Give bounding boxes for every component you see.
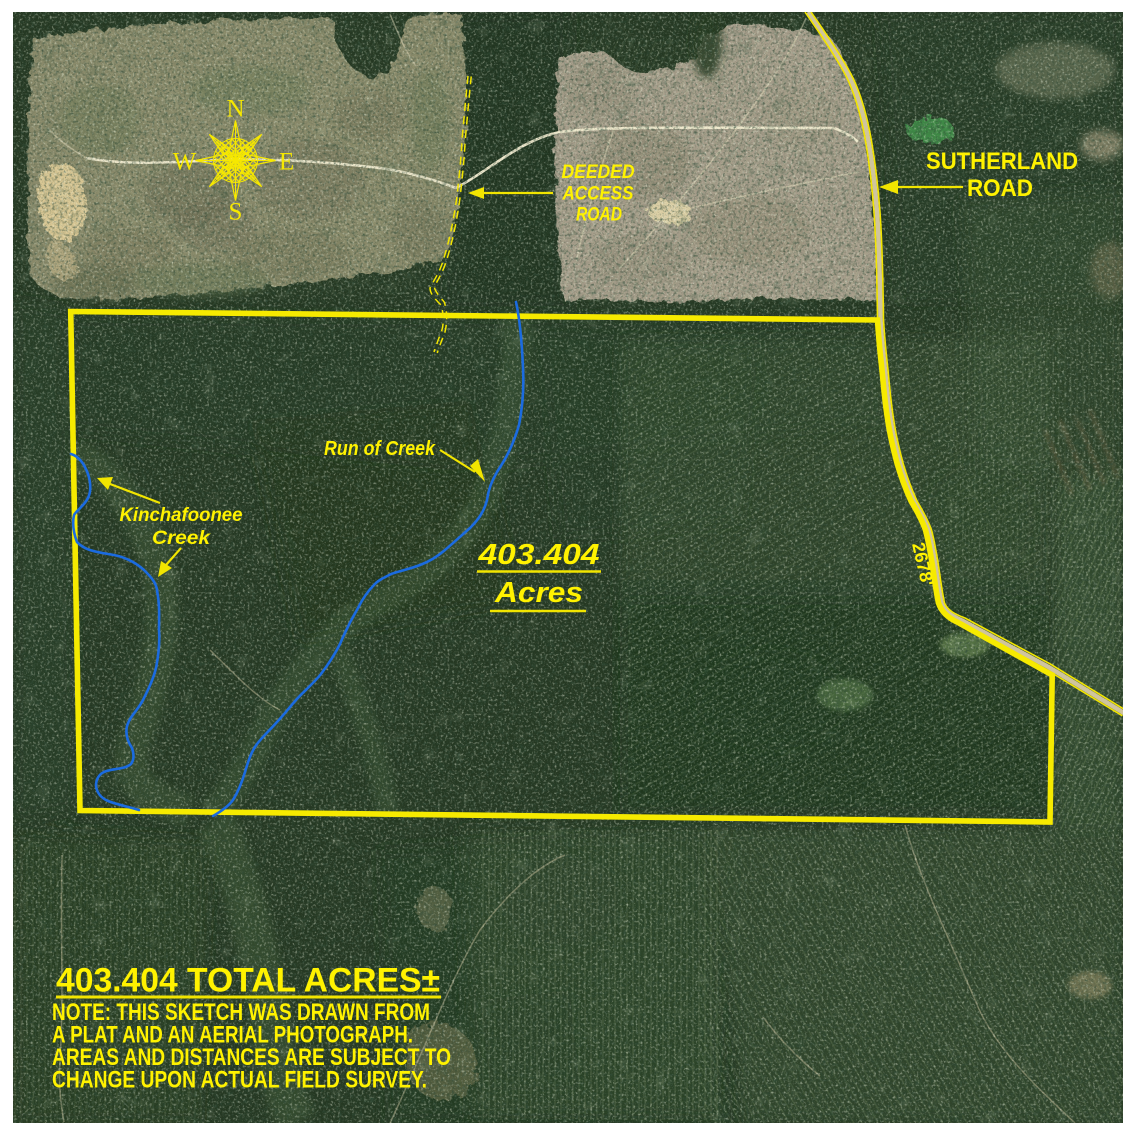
svg-text:CHANGE UPON ACTUAL FIELD SURVE: CHANGE UPON ACTUAL FIELD SURVEY. xyxy=(52,1067,427,1094)
svg-text:N: N xyxy=(226,96,244,123)
svg-text:W: W xyxy=(173,149,197,176)
svg-text:Creek: Creek xyxy=(152,527,211,549)
svg-text:403.404 TOTAL ACRES±: 403.404 TOTAL ACRES± xyxy=(56,962,440,1000)
svg-text:DEEDED: DEEDED xyxy=(562,162,635,183)
svg-text:ROAD: ROAD xyxy=(576,205,622,226)
svg-text:Run of Creek: Run of Creek xyxy=(324,437,436,460)
svg-text:S: S xyxy=(229,199,243,226)
svg-text:SUTHERLAND: SUTHERLAND xyxy=(926,148,1078,175)
svg-text:403.404: 403.404 xyxy=(477,539,599,571)
svg-text:Acres: Acres xyxy=(494,577,583,609)
svg-text:Kinchafoonee: Kinchafoonee xyxy=(120,504,243,526)
svg-text:E: E xyxy=(279,149,294,176)
svg-text:ACCESS: ACCESS xyxy=(562,184,634,205)
svg-text:ROAD: ROAD xyxy=(967,175,1033,202)
